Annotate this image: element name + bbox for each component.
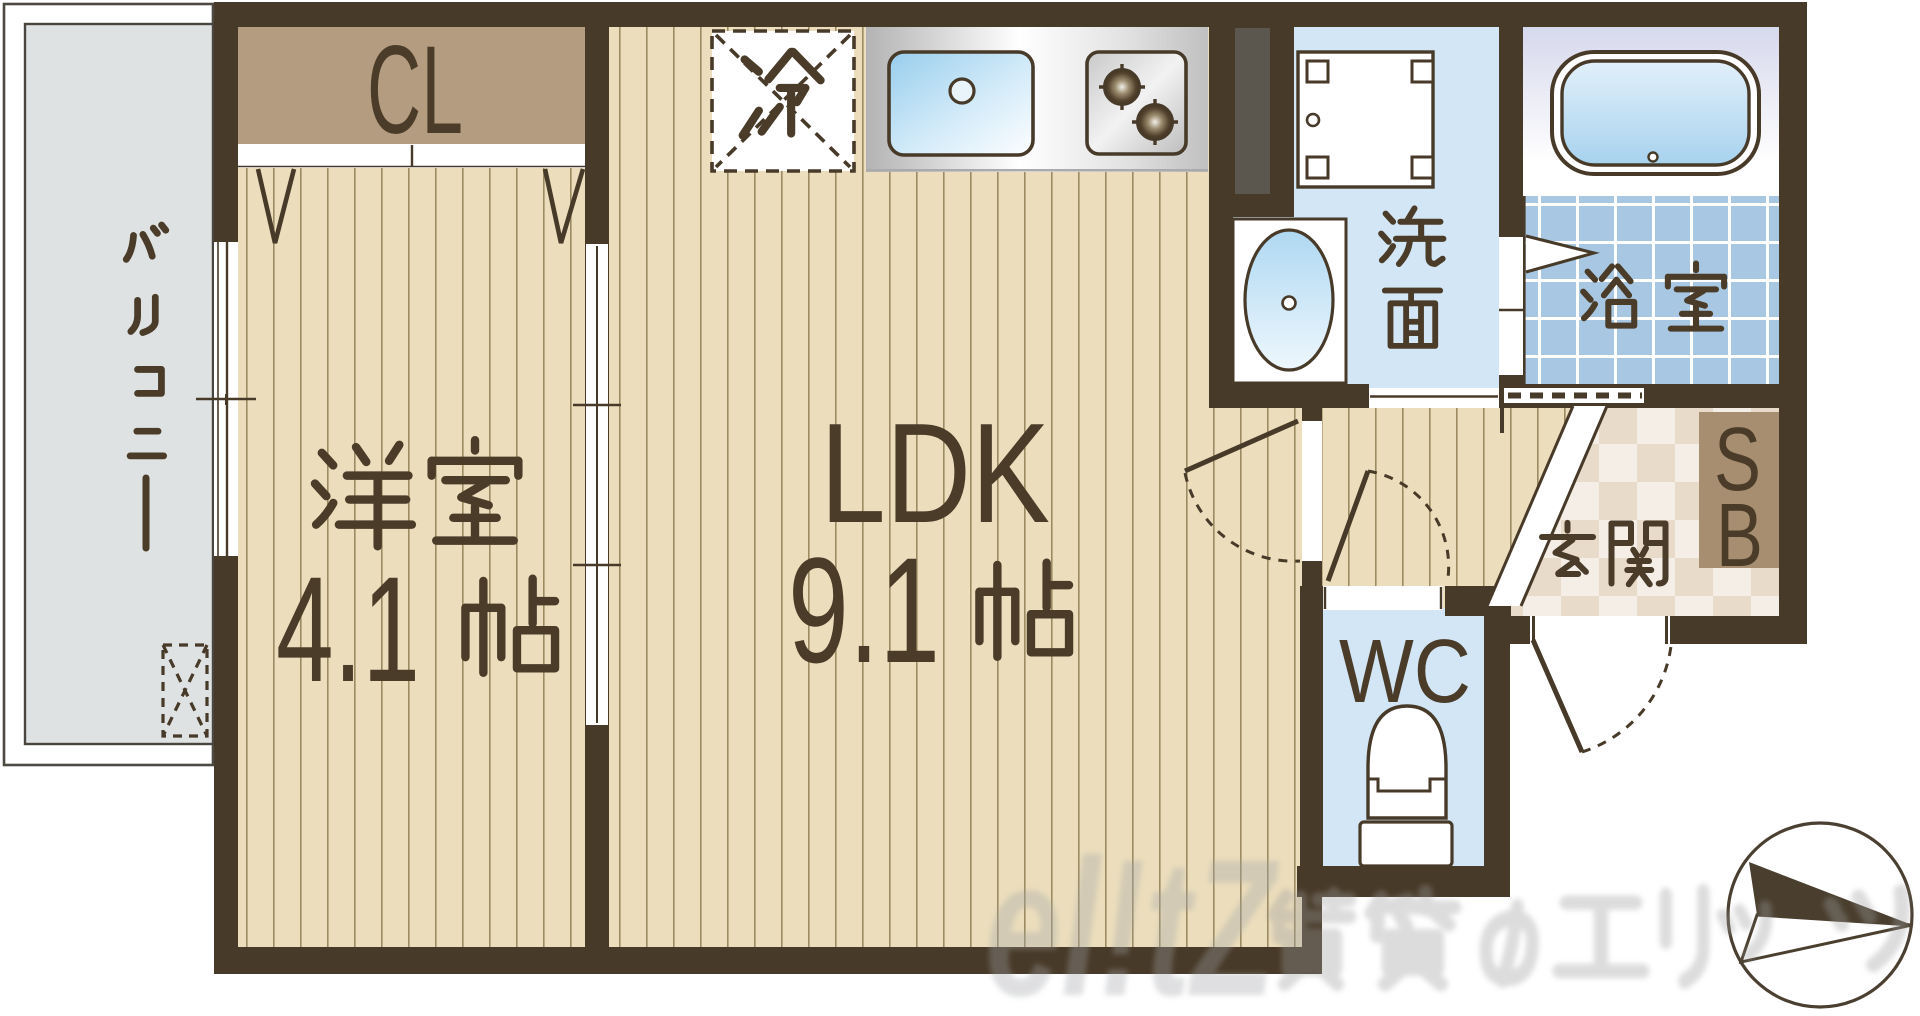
svg-text:B: B	[1716, 486, 1763, 586]
svg-text:4.1: 4.1	[276, 545, 420, 713]
svg-text:WC: WC	[1339, 622, 1471, 722]
svg-text:el!tZ: el!tZ	[985, 819, 1280, 1016]
svg-text:CL: CL	[367, 21, 463, 160]
svg-text:9.1: 9.1	[788, 526, 940, 694]
